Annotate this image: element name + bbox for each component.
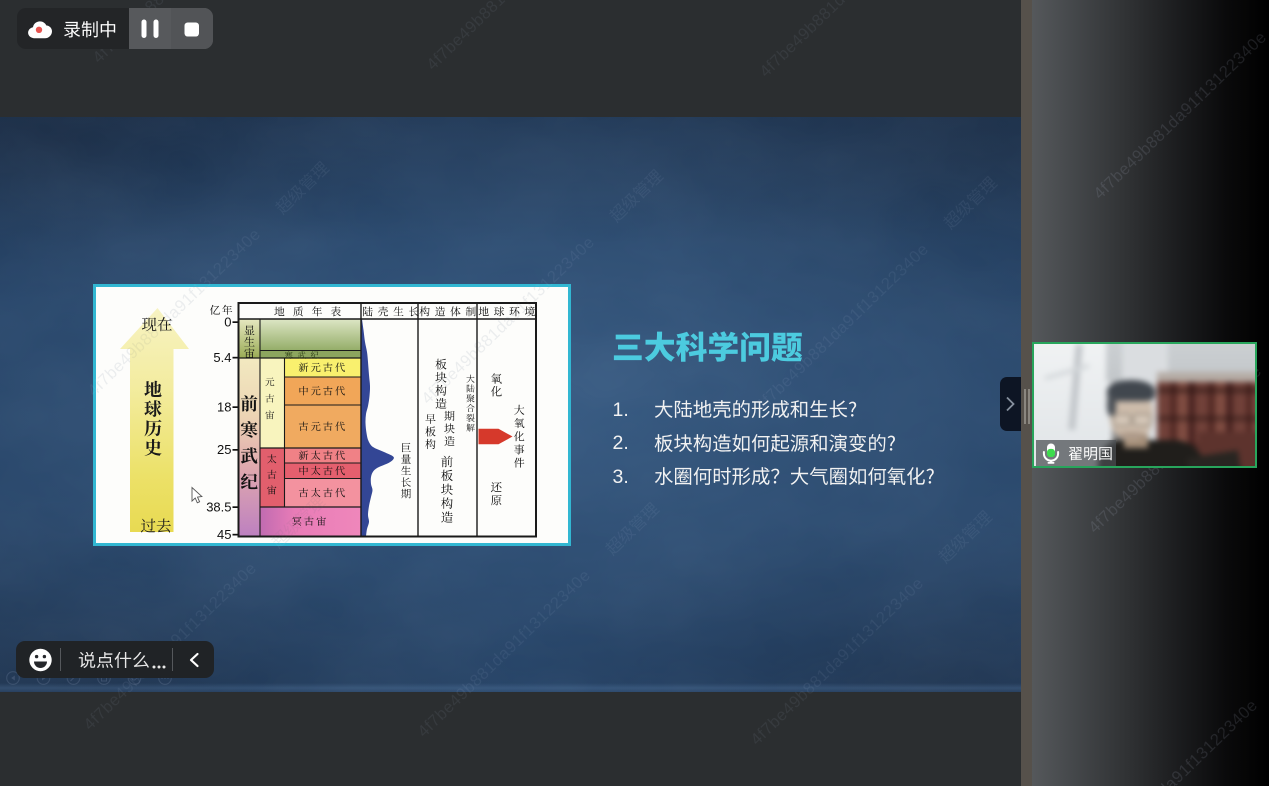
svg-text:4f7be49b881da91f13122340e: 4f7be49b881da91f13122340e (418, 286, 568, 408)
svg-text:4f7be49b881da91f13122340e: 4f7be49b881da91f13122340e (756, 0, 936, 81)
svg-text:4f7be49b881da91f13122340e: 4f7be49b881da91f13122340e (423, 0, 603, 74)
svg-text:4f7be49b881da91f13122340e: 4f7be49b881da91f13122340e (97, 286, 264, 400)
svg-text:4f7be49b881da91f13122340e: 4f7be49b881da91f13122340e (1081, 696, 1261, 786)
svg-text:4f7be49b881da91f13122340e: 4f7be49b881da91f13122340e (1090, 28, 1269, 203)
